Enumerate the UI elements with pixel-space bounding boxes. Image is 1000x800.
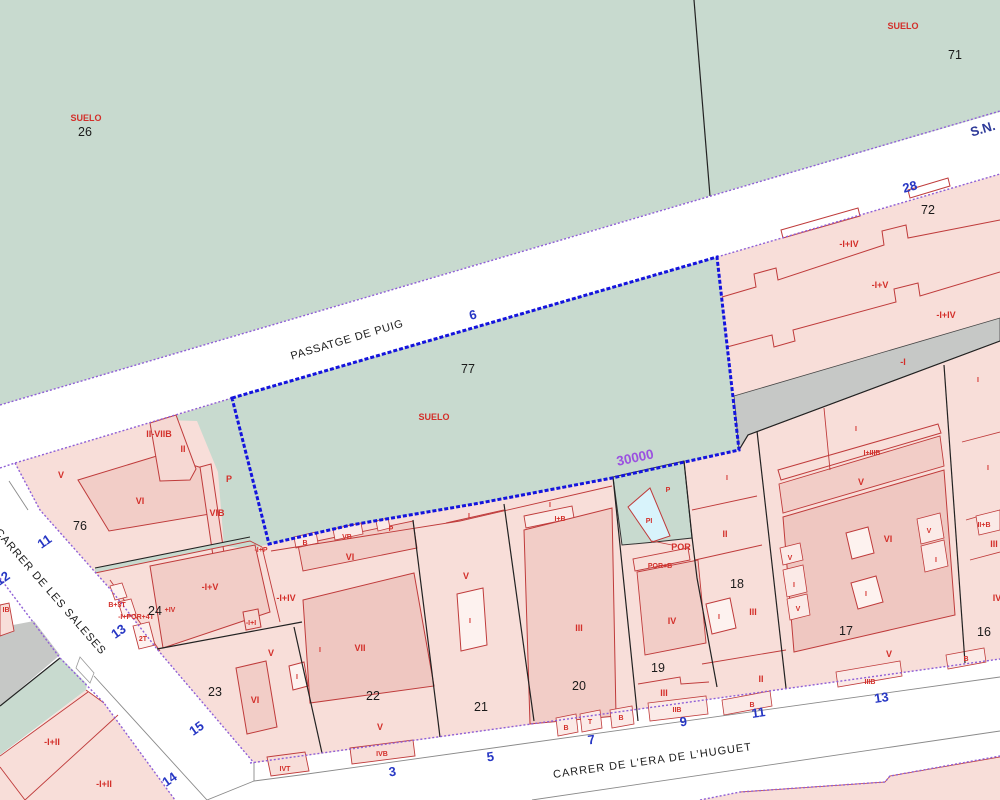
svg-text:-I+V: -I+V xyxy=(872,280,889,290)
svg-text:V: V xyxy=(377,722,383,732)
svg-text:SUELO: SUELO xyxy=(70,113,101,123)
svg-text:-I+V: -I+V xyxy=(202,582,219,592)
svg-text:V: V xyxy=(463,571,469,581)
svg-text:-I+II: -I+II xyxy=(44,737,60,747)
svg-text:I: I xyxy=(718,614,720,621)
svg-text:18: 18 xyxy=(730,577,744,591)
svg-text:11: 11 xyxy=(751,704,767,721)
svg-text:2T: 2T xyxy=(139,636,148,643)
svg-text:V: V xyxy=(858,477,864,487)
svg-text:T: T xyxy=(588,719,593,726)
svg-text:VI: VI xyxy=(884,534,893,544)
svg-text:PI: PI xyxy=(646,518,653,525)
svg-text:VI: VI xyxy=(346,552,355,562)
svg-text:IVT: IVT xyxy=(280,766,292,773)
svg-text:20: 20 xyxy=(572,679,586,693)
svg-text:B: B xyxy=(563,725,568,732)
svg-text:I+B: I+B xyxy=(554,516,565,523)
svg-text:IV: IV xyxy=(993,593,1000,603)
svg-text:72: 72 xyxy=(921,203,935,217)
svg-text:II: II xyxy=(758,674,763,684)
svg-text:-I+IV: -I+IV xyxy=(839,239,858,249)
svg-text:VI: VI xyxy=(136,496,145,506)
svg-text:77: 77 xyxy=(461,362,475,376)
svg-text:-I+I: -I+I xyxy=(246,620,256,627)
svg-text:V: V xyxy=(58,470,64,480)
svg-text:I: I xyxy=(549,502,551,509)
svg-text:+IV: +IV xyxy=(165,607,176,614)
svg-text:19: 19 xyxy=(651,661,665,675)
svg-text:I: I xyxy=(855,426,857,433)
svg-text:23: 23 xyxy=(208,685,222,699)
svg-text:VII: VII xyxy=(354,643,365,653)
svg-text:I: I xyxy=(987,465,989,472)
svg-text:-I+II: -I+II xyxy=(96,779,112,789)
svg-text:V: V xyxy=(886,649,892,659)
svg-text:IVB: IVB xyxy=(376,751,388,758)
svg-text:SUELO: SUELO xyxy=(887,21,918,31)
svg-text:26: 26 xyxy=(78,125,92,139)
svg-text:V: V xyxy=(268,648,274,658)
svg-text:V: V xyxy=(927,528,932,535)
svg-text:V: V xyxy=(788,555,793,562)
svg-text:B+3T: B+3T xyxy=(108,602,126,609)
svg-text:I+IIIB: I+IIIB xyxy=(864,450,881,457)
svg-text:I: I xyxy=(468,513,470,520)
svg-text:II-VIIB: II-VIIB xyxy=(146,429,172,439)
svg-text:I: I xyxy=(935,557,937,564)
svg-text:III: III xyxy=(749,607,757,617)
svg-text:22: 22 xyxy=(366,689,380,703)
svg-text:II+B: II+B xyxy=(977,522,990,529)
svg-text:24: 24 xyxy=(148,604,162,618)
svg-text:76: 76 xyxy=(73,519,87,533)
svg-text:B: B xyxy=(618,715,623,722)
svg-text:V: V xyxy=(796,606,801,613)
svg-text:IIB: IIB xyxy=(673,707,682,714)
svg-text:POR+B: POR+B xyxy=(648,563,672,570)
svg-text:I: I xyxy=(469,618,471,625)
svg-text:-I+IV: -I+IV xyxy=(276,593,295,603)
svg-text:I: I xyxy=(726,475,728,482)
svg-text:-I: -I xyxy=(900,357,906,367)
svg-text:B: B xyxy=(302,540,307,547)
svg-text:IB: IB xyxy=(3,607,10,614)
svg-text:POR: POR xyxy=(671,542,691,552)
svg-text:I: I xyxy=(793,582,795,589)
svg-text:I: I xyxy=(977,377,979,384)
svg-text:III: III xyxy=(575,623,583,633)
svg-text:I: I xyxy=(319,647,321,654)
svg-text:17: 17 xyxy=(839,624,853,638)
svg-text:II: II xyxy=(722,529,727,539)
svg-text:SUELO: SUELO xyxy=(418,412,449,422)
svg-text:IIIB: IIIB xyxy=(865,679,876,686)
svg-text:VI: VI xyxy=(251,695,260,705)
svg-text:VB: VB xyxy=(342,534,352,541)
svg-text:13: 13 xyxy=(873,689,889,706)
svg-text:II: II xyxy=(180,444,185,454)
svg-text:P: P xyxy=(226,474,232,484)
svg-text:I: I xyxy=(865,591,867,598)
svg-text:B: B xyxy=(963,656,968,663)
svg-text:P: P xyxy=(666,487,671,494)
svg-text:III: III xyxy=(990,539,998,549)
svg-text:IV: IV xyxy=(668,616,677,626)
svg-text:-I+IV: -I+IV xyxy=(936,310,955,320)
svg-text:71: 71 xyxy=(948,48,962,62)
svg-text:I: I xyxy=(296,674,298,681)
svg-text:-I+P: -I+P xyxy=(254,547,267,554)
svg-text:VIB: VIB xyxy=(209,508,225,518)
svg-text:III: III xyxy=(660,688,668,698)
svg-text:16: 16 xyxy=(977,625,991,639)
svg-text:P: P xyxy=(389,526,394,533)
svg-text:21: 21 xyxy=(474,700,488,714)
